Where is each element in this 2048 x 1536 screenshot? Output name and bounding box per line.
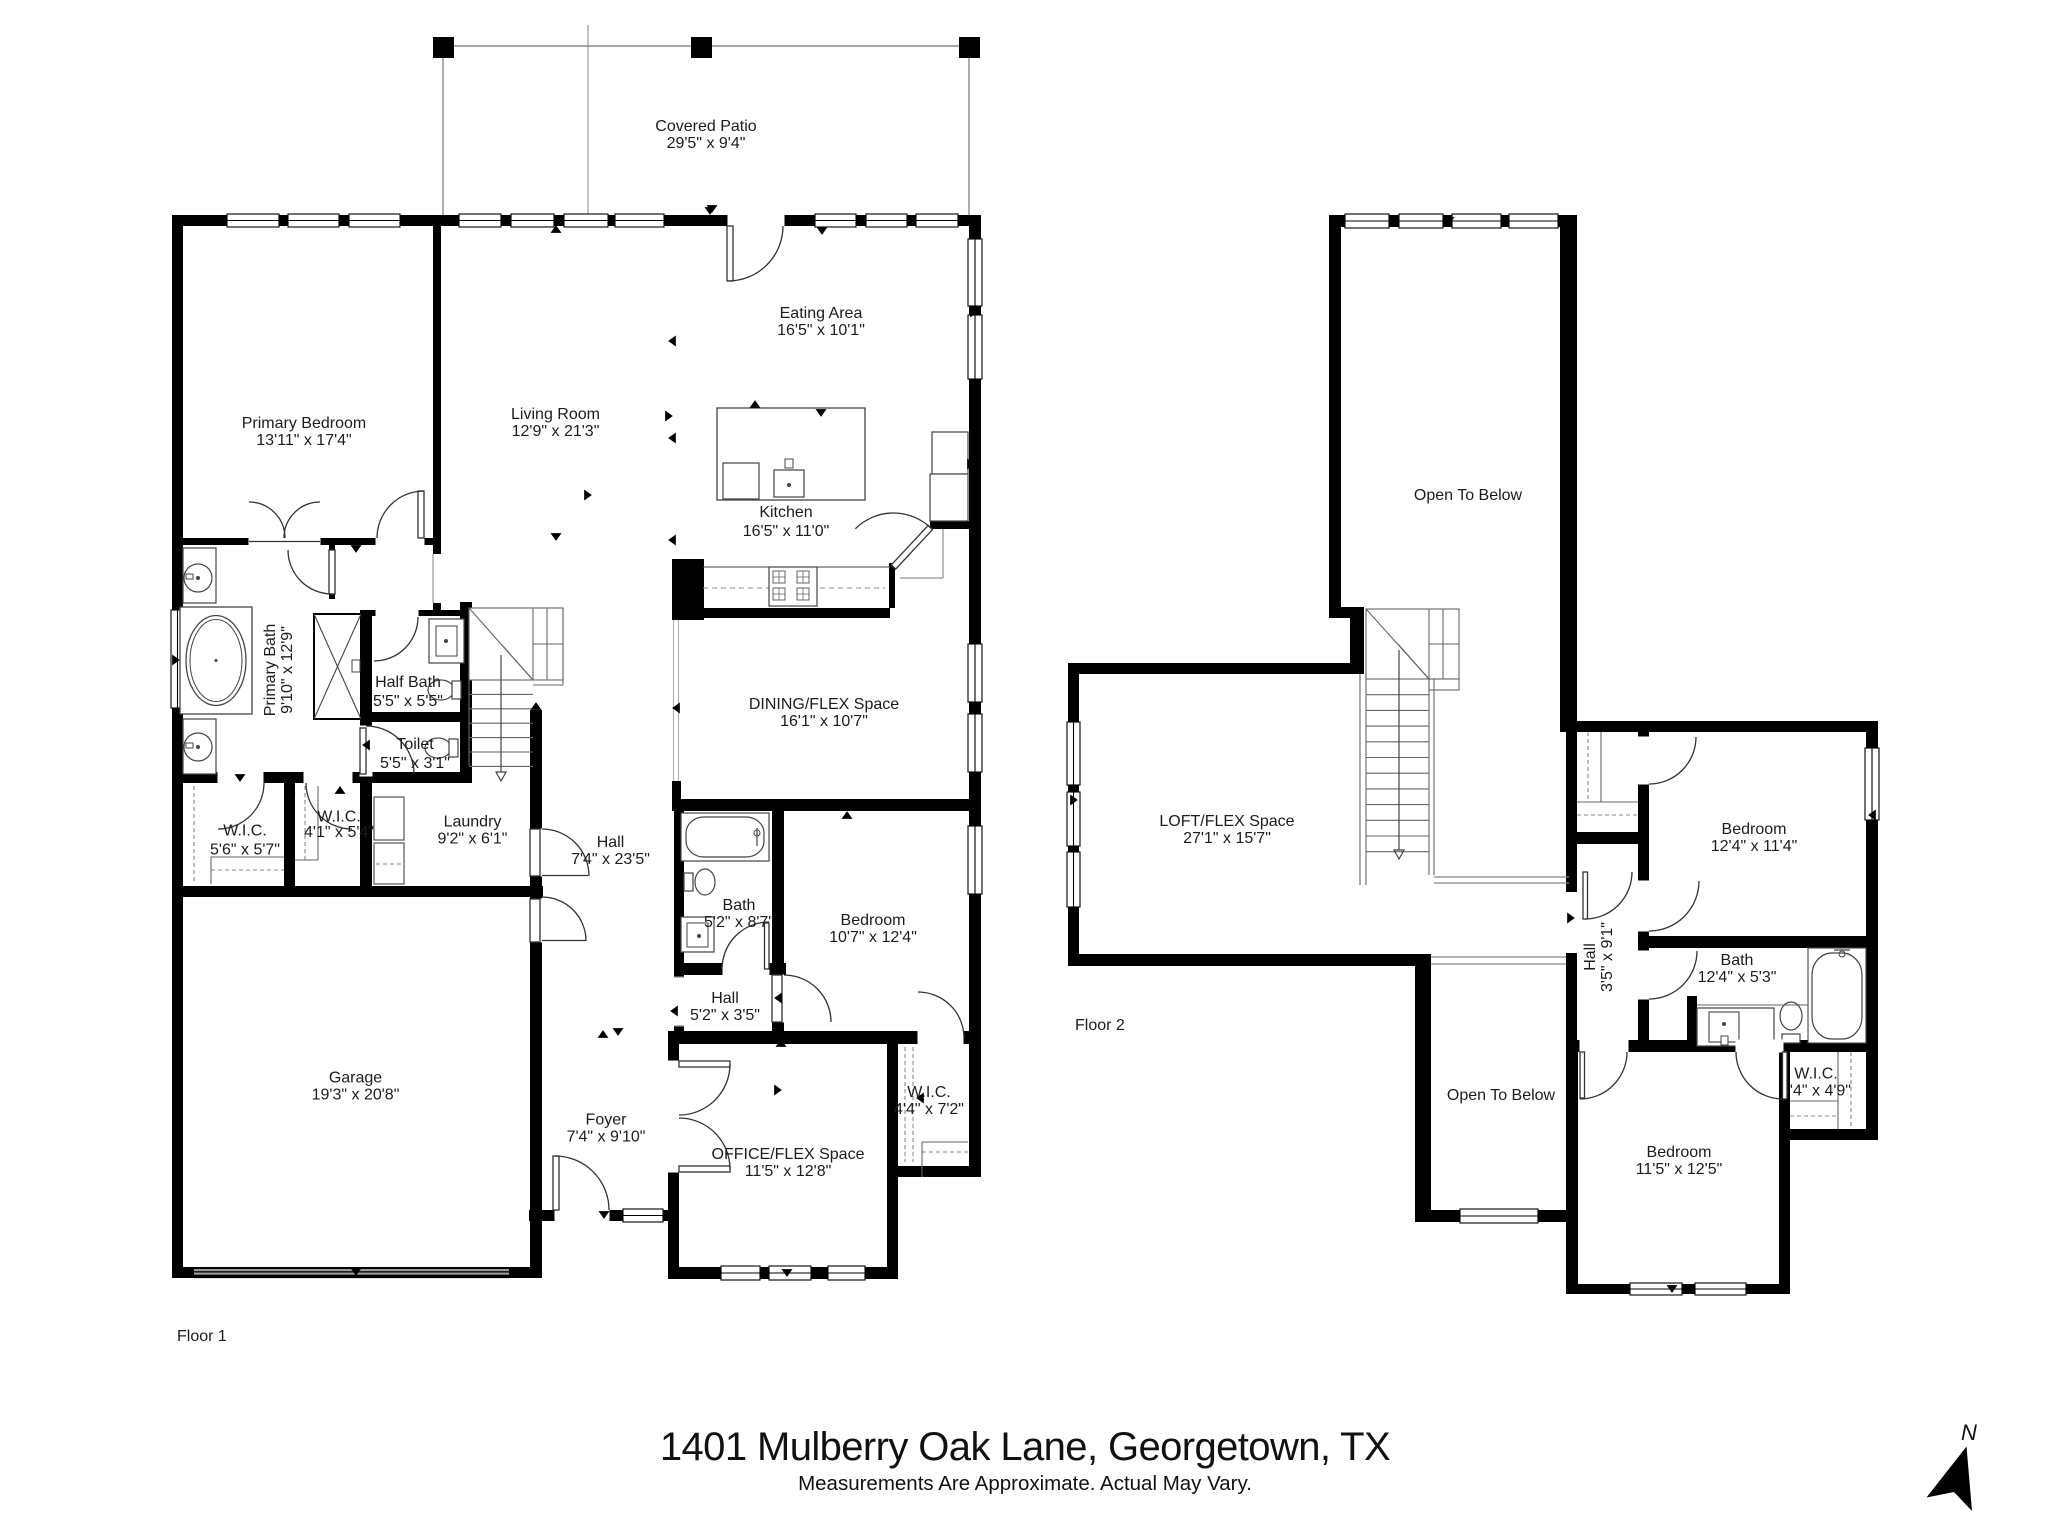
svg-text:4'4" x 7'2": 4'4" x 7'2" xyxy=(894,1101,964,1118)
svg-text:Open To Below: Open To Below xyxy=(1414,487,1523,504)
svg-text:Primary Bedroom: Primary Bedroom xyxy=(242,415,366,432)
svg-text:OFFICE/FLEX Space: OFFICE/FLEX Space xyxy=(712,1146,865,1163)
svg-text:Floor 1: Floor 1 xyxy=(177,1328,227,1345)
svg-text:Kitchen: Kitchen xyxy=(759,504,812,521)
svg-text:12'4" x 11'4": 12'4" x 11'4" xyxy=(1711,838,1798,855)
svg-text:Floor 2: Floor 2 xyxy=(1075,1017,1125,1034)
svg-text:10'7" x 12'4": 10'7" x 12'4" xyxy=(829,929,917,946)
svg-text:W.I.C.: W.I.C. xyxy=(223,823,267,840)
svg-text:Toilet: Toilet xyxy=(396,736,434,753)
svg-text:W.I.C.: W.I.C. xyxy=(1794,1066,1838,1083)
svg-text:5'2" x 8'7": 5'2" x 8'7" xyxy=(704,914,774,931)
svg-text:5'2" x 3'5": 5'2" x 3'5" xyxy=(690,1007,760,1024)
svg-text:16'5" x 11'0": 16'5" x 11'0" xyxy=(743,523,830,540)
svg-text:4'4" x 4'9": 4'4" x 4'9" xyxy=(1781,1083,1851,1100)
svg-text:7'4" x 9'10": 7'4" x 9'10" xyxy=(567,1129,646,1146)
svg-text:5'6" x 5'7": 5'6" x 5'7" xyxy=(210,841,280,858)
svg-text:Garage: Garage xyxy=(329,1070,382,1087)
svg-text:12'4" x 5'3": 12'4" x 5'3" xyxy=(1698,969,1777,986)
svg-text:3'5" x 9'1": 3'5" x 9'1" xyxy=(1599,922,1616,992)
svg-text:N: N xyxy=(1961,1420,1977,1445)
svg-text:9'10" x 12'9": 9'10" x 12'9" xyxy=(279,626,296,714)
svg-text:4'1" x 5'4": 4'1" x 5'4" xyxy=(304,824,374,841)
svg-text:Half Bath: Half Bath xyxy=(375,674,441,691)
svg-text:11'5" x 12'8": 11'5" x 12'8" xyxy=(745,1163,832,1180)
svg-text:W.I.C.: W.I.C. xyxy=(907,1084,951,1101)
svg-text:Open To Below: Open To Below xyxy=(1447,1087,1556,1104)
svg-text:Hall: Hall xyxy=(711,990,739,1007)
svg-text:13'11" x 17'4": 13'11" x 17'4" xyxy=(256,432,351,449)
svg-text:LOFT/FLEX Space: LOFT/FLEX Space xyxy=(1159,813,1294,830)
svg-text:Bath: Bath xyxy=(723,897,756,914)
svg-text:5'5" x 5'5": 5'5" x 5'5" xyxy=(373,693,443,710)
svg-text:DINING/FLEX Space: DINING/FLEX Space xyxy=(749,696,899,713)
svg-text:Foyer: Foyer xyxy=(586,1112,628,1129)
svg-text:Bedroom: Bedroom xyxy=(1647,1144,1712,1161)
svg-text:Covered Patio: Covered Patio xyxy=(655,118,756,135)
svg-text:Hall: Hall xyxy=(1582,943,1599,971)
svg-text:11'5" x 12'5": 11'5" x 12'5" xyxy=(1636,1161,1723,1178)
svg-text:19'3" x 20'8": 19'3" x 20'8" xyxy=(312,1087,400,1104)
svg-text:29'5" x 9'4": 29'5" x 9'4" xyxy=(667,135,746,152)
svg-text:Living Room: Living Room xyxy=(511,406,600,423)
svg-text:Measurements Are Approximate.: Measurements Are Approximate. Actual May… xyxy=(798,1472,1252,1495)
svg-text:5'5" x 3'1": 5'5" x 3'1" xyxy=(380,755,450,772)
svg-text:7'4" x 23'5": 7'4" x 23'5" xyxy=(571,851,650,868)
svg-text:16'1" x 10'7": 16'1" x 10'7" xyxy=(780,713,868,730)
svg-text:12'9" x 21'3": 12'9" x 21'3" xyxy=(512,423,600,440)
svg-text:Laundry: Laundry xyxy=(444,814,502,831)
svg-text:Bedroom: Bedroom xyxy=(841,912,906,929)
svg-text:W.I.C.: W.I.C. xyxy=(317,809,361,826)
svg-text:Eating Area: Eating Area xyxy=(780,305,863,322)
svg-text:9'2" x 6'1": 9'2" x 6'1" xyxy=(438,831,508,848)
svg-text:Primary Bath: Primary Bath xyxy=(262,624,279,716)
svg-text:Hall: Hall xyxy=(597,834,625,851)
svg-text:27'1" x 15'7": 27'1" x 15'7" xyxy=(1183,830,1271,847)
svg-text:16'5" x 10'1": 16'5" x 10'1" xyxy=(777,322,865,339)
svg-text:Bedroom: Bedroom xyxy=(1722,821,1787,838)
svg-text:1401 Mulberry Oak Lane, George: 1401 Mulberry Oak Lane, Georgetown, TX xyxy=(660,1425,1390,1469)
svg-text:Bath: Bath xyxy=(1721,952,1754,969)
